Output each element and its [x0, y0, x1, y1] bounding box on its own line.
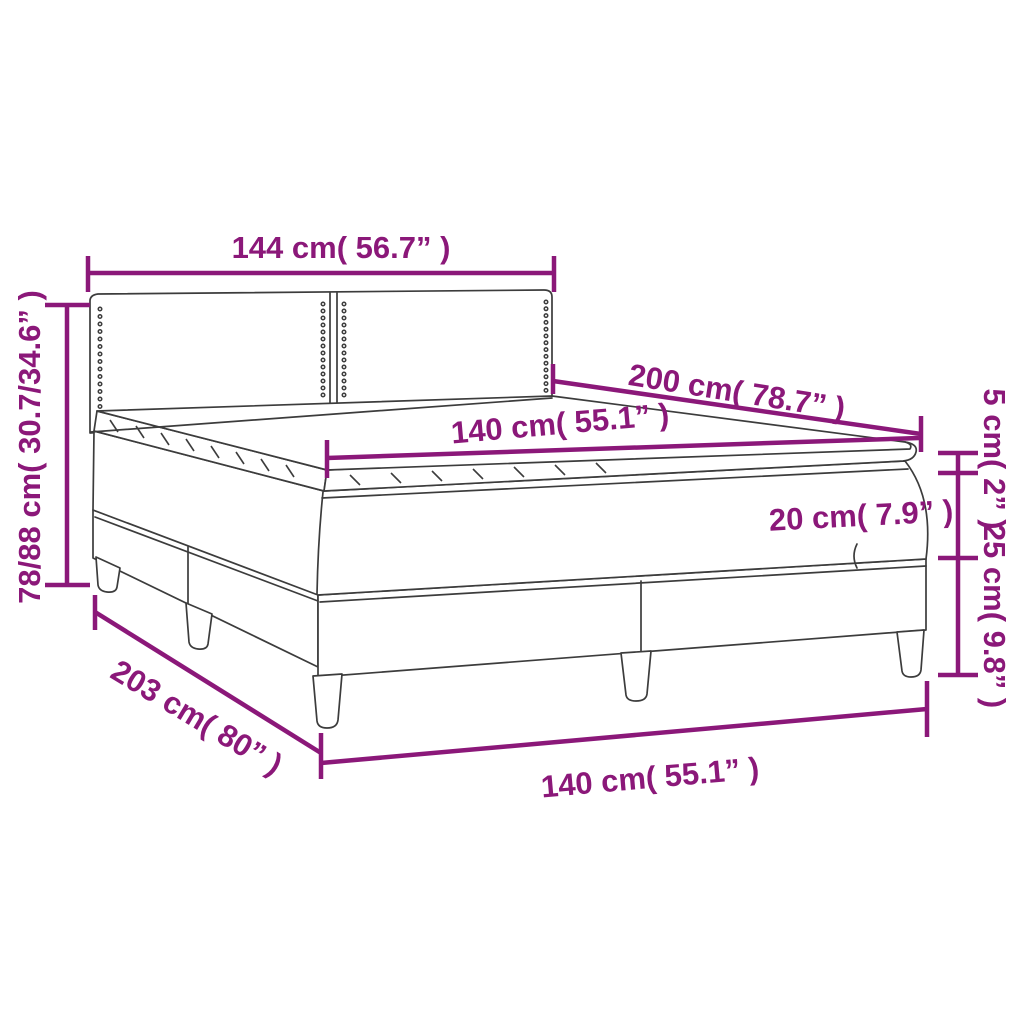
- dim-headboard-width: 144 cm( 56.7” ): [88, 230, 554, 292]
- dimension-diagram: 144 cm( 56.7” ) 200 cm( 78.7” ) 140 cm( …: [0, 0, 1024, 1024]
- bed-diagram-canvas: 144 cm( 56.7” ) 200 cm( 78.7” ) 140 cm( …: [0, 0, 1024, 1024]
- leg-front-left: [313, 674, 342, 728]
- headboard-width-label: 144 cm( 56.7” ): [232, 230, 451, 265]
- leg-front-middle: [621, 651, 651, 701]
- leg-front-right: [897, 630, 924, 677]
- total-height-label: 78/88 cm( 30.7/34.6” ): [12, 290, 47, 604]
- dim-bed-width-bottom: 140 cm( 55.1” ): [321, 681, 927, 804]
- dim-total-height: 78/88 cm( 30.7/34.6” ): [12, 290, 90, 604]
- topper-height-label: 5 cm( 2” ): [977, 388, 1012, 529]
- dim-right-heights: 5 cm( 2” ) 25 cm( 9.8” ): [938, 388, 1012, 708]
- base-height-label: 25 cm( 9.8” ): [977, 524, 1012, 708]
- bed-width-bottom-label: 140 cm( 55.1” ): [540, 751, 761, 805]
